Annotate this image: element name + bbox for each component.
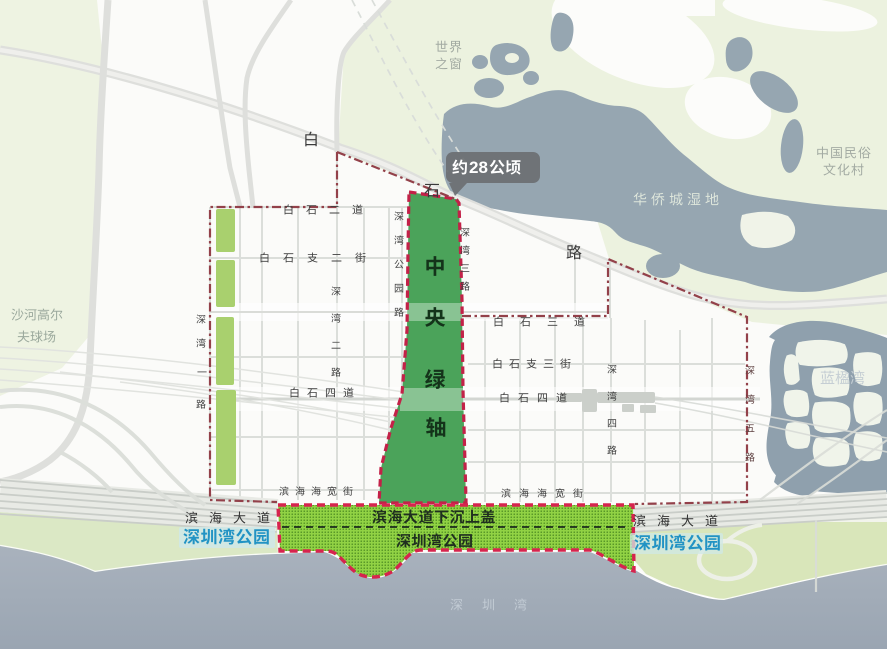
svg-text:28: 28 [469,158,488,177]
